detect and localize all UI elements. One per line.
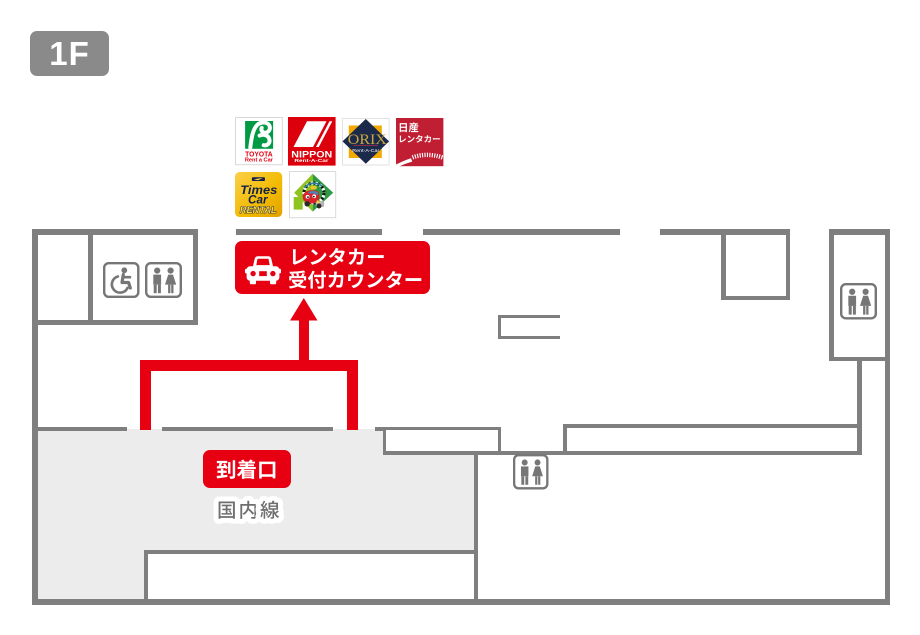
svg-text:Rent-A-Car: Rent-A-Car — [352, 147, 379, 153]
svg-text:Rent-A-Car: Rent-A-Car — [294, 158, 328, 164]
svg-text:Rent a Car: Rent a Car — [244, 157, 273, 163]
svg-text:RENTAL: RENTAL — [240, 204, 276, 214]
